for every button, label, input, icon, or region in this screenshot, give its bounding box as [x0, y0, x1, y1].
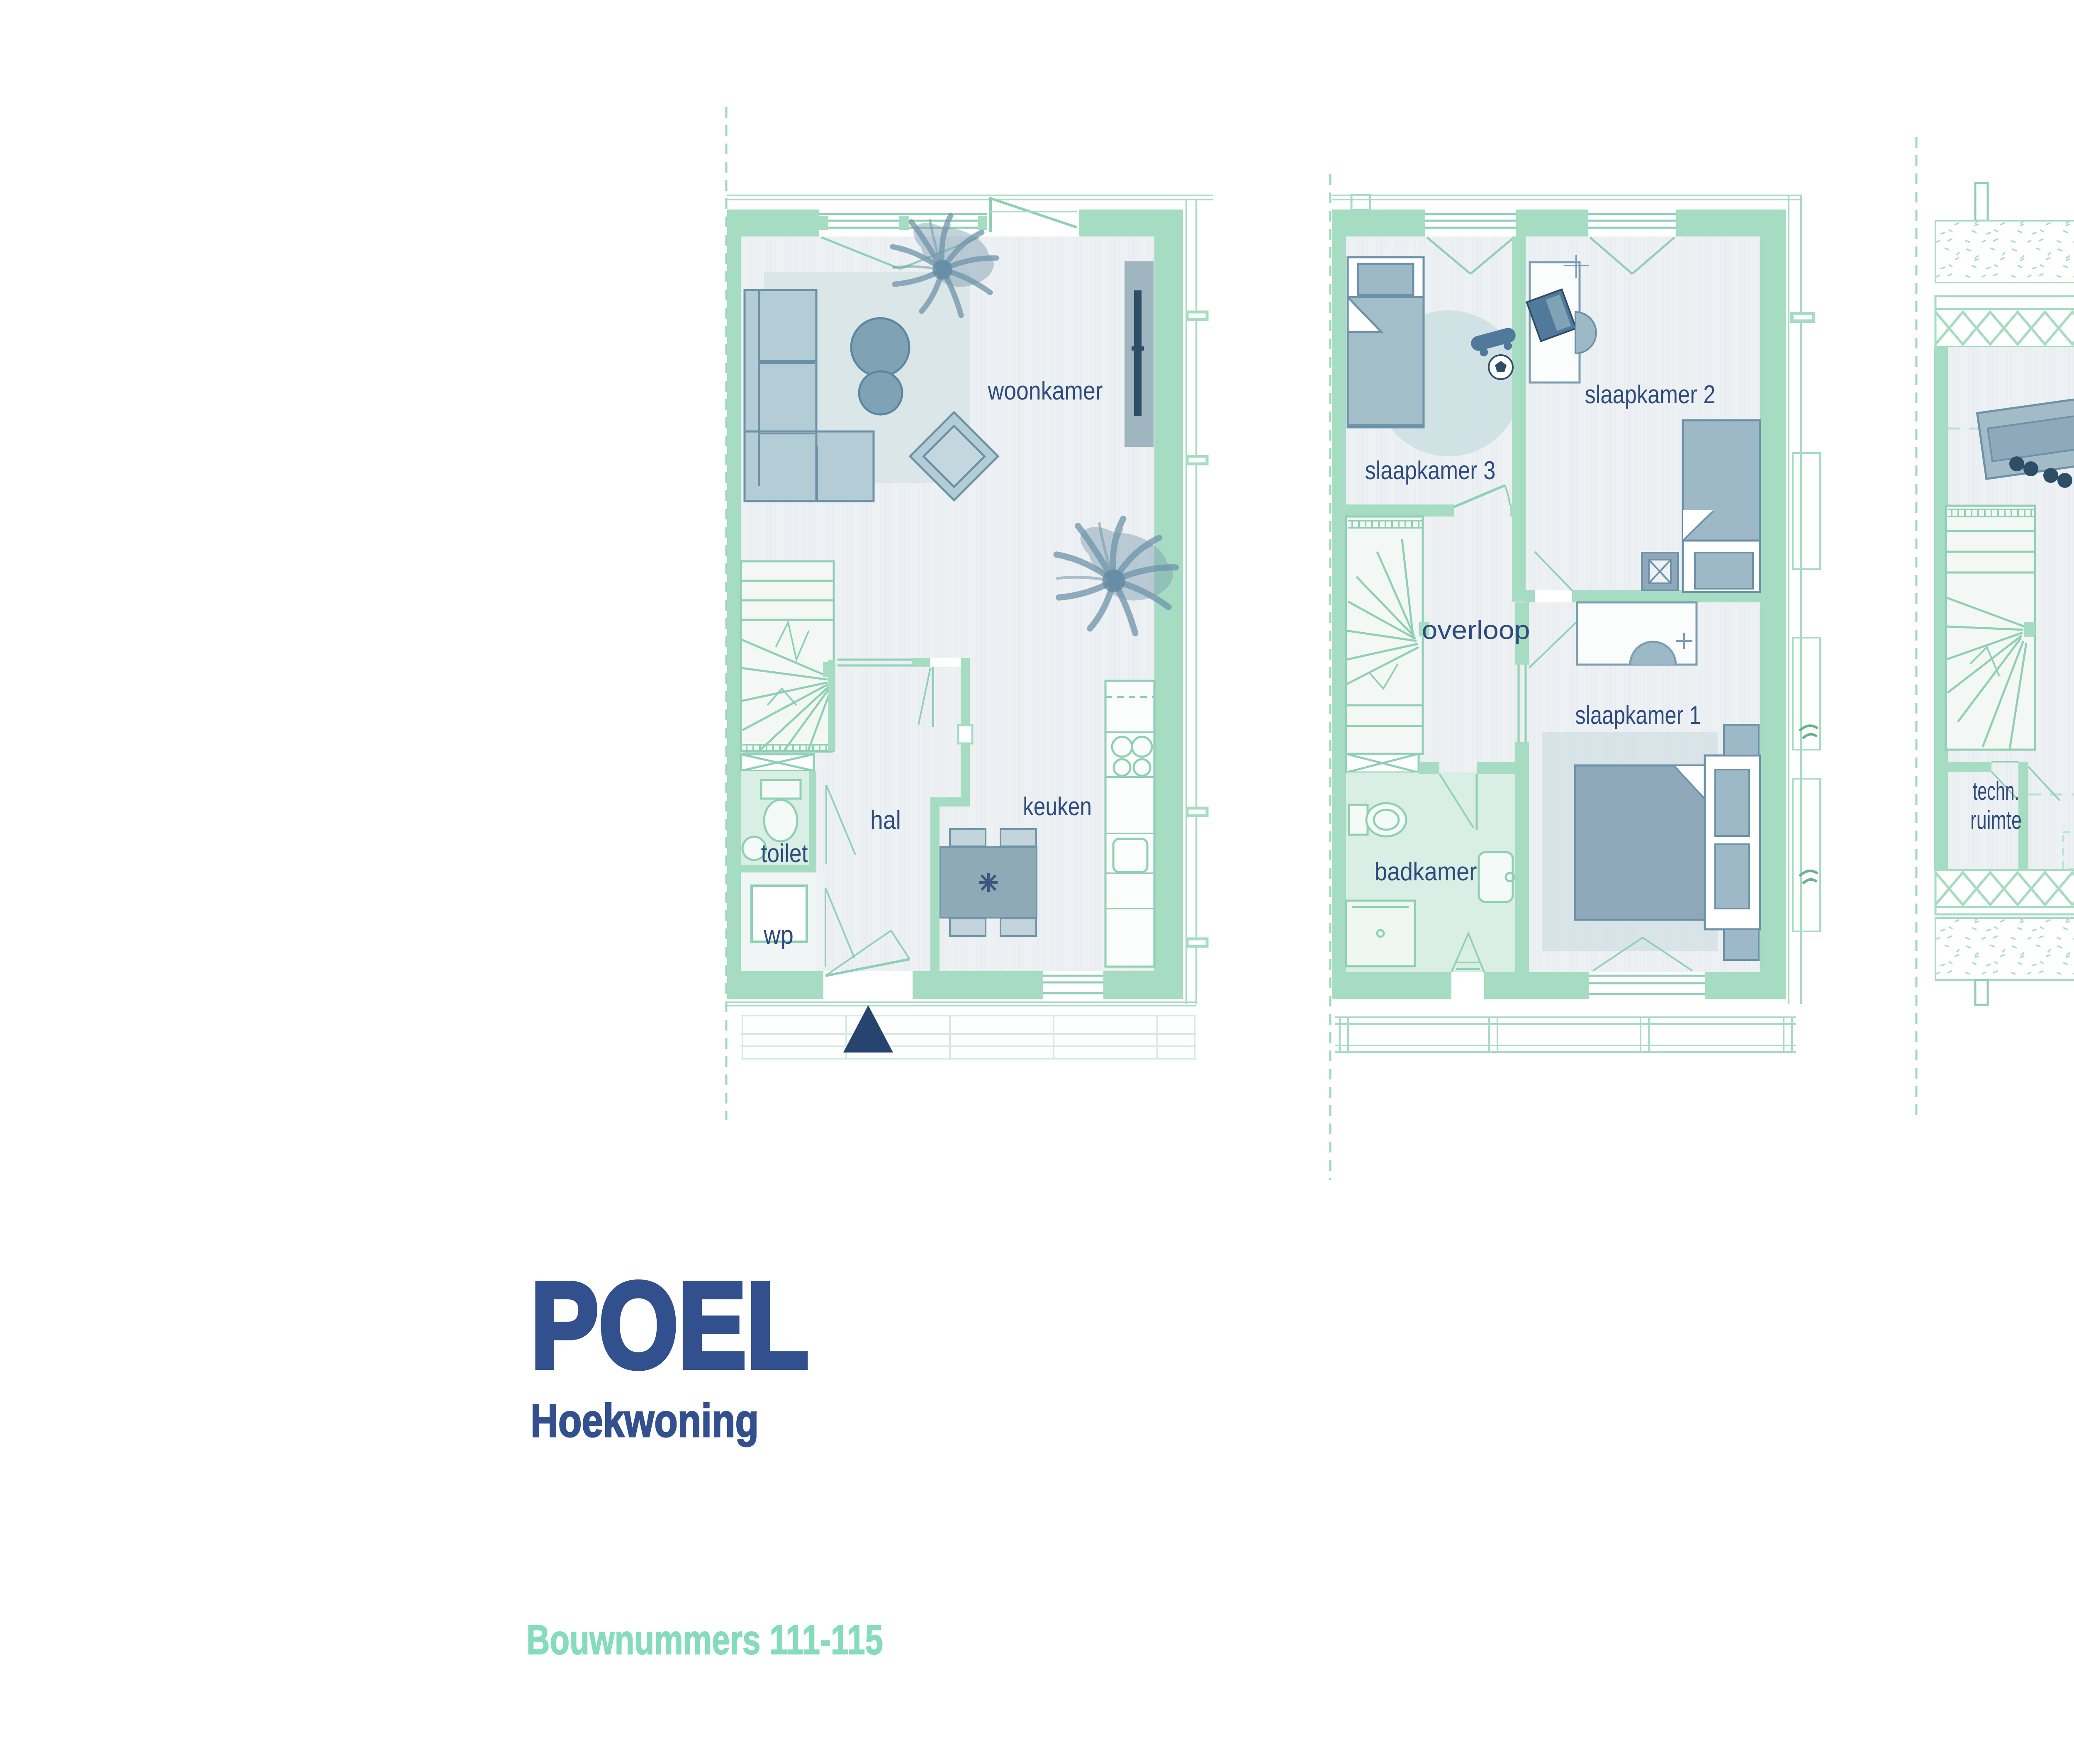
svg-text:slaapkamer 2: slaapkamer 2	[1585, 380, 1716, 409]
svg-text:woonkamer: woonkamer	[988, 377, 1103, 405]
svg-text:badkamer: badkamer	[1375, 858, 1477, 886]
svg-text:slaapkamer 1: slaapkamer 1	[1575, 701, 1701, 730]
svg-text:Hoekwoning: Hoekwoning	[531, 1395, 759, 1447]
svg-text:slaapkamer 3: slaapkamer 3	[1365, 456, 1496, 485]
svg-text:techn.: techn.	[1973, 777, 2019, 806]
svg-text:wp: wp	[763, 921, 794, 950]
svg-text:POEL: POEL	[531, 1257, 809, 1394]
svg-text:ruimte: ruimte	[1970, 806, 2022, 835]
svg-text:keuken: keuken	[1023, 792, 1092, 821]
svg-text:toilet: toilet	[761, 839, 808, 868]
svg-text:Bouwnummers 111-115: Bouwnummers 111-115	[526, 1617, 883, 1663]
svg-text:hal: hal	[870, 806, 901, 835]
svg-text:overloop: overloop	[1422, 616, 1530, 645]
